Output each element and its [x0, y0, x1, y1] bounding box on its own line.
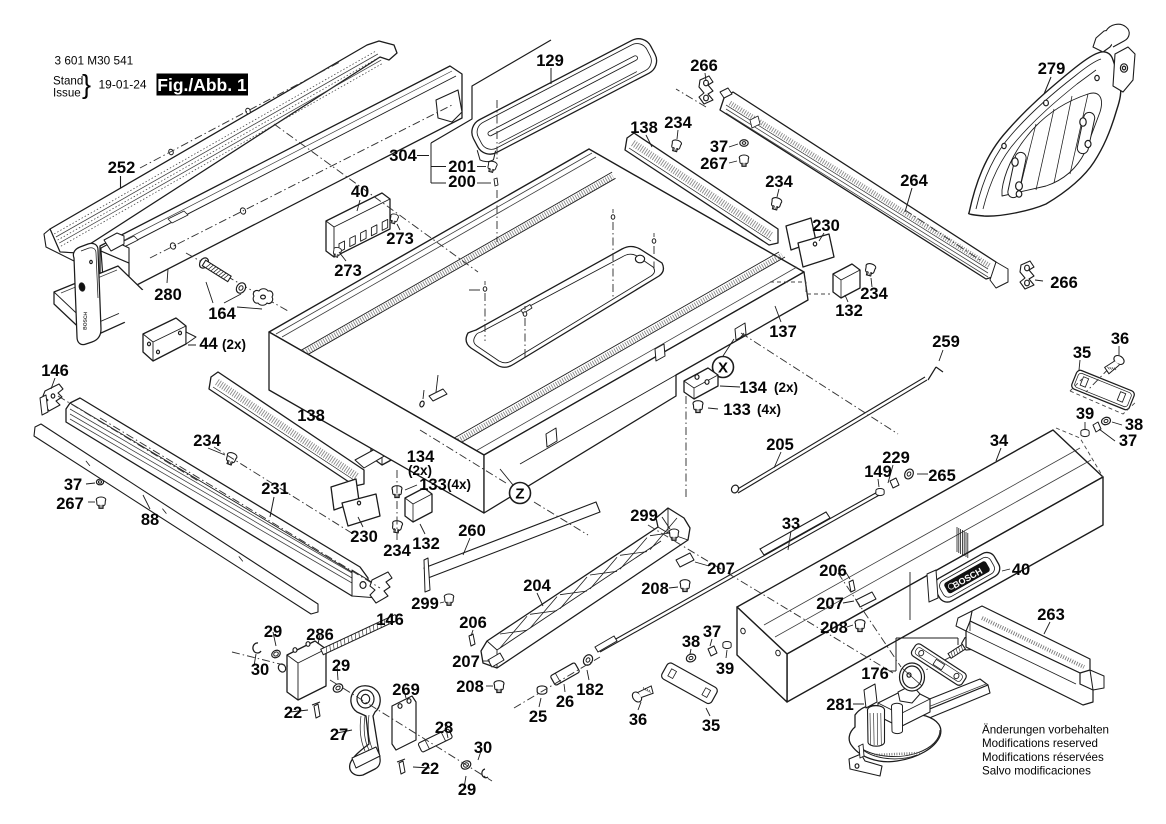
svg-text:281: 281 — [826, 696, 854, 714]
svg-text:Fig./Abb. 1: Fig./Abb. 1 — [157, 75, 247, 95]
svg-text:38: 38 — [682, 633, 700, 651]
svg-text:259: 259 — [932, 333, 960, 351]
svg-text:260: 260 — [458, 522, 486, 540]
svg-text:138: 138 — [297, 407, 325, 425]
svg-text:Änderungen vorbehalten: Änderungen vorbehalten — [982, 724, 1109, 737]
svg-text:Salvo modificaciones: Salvo modificaciones — [982, 765, 1091, 778]
svg-text:205: 205 — [766, 436, 794, 454]
svg-text:208: 208 — [820, 619, 848, 637]
svg-text:34: 34 — [990, 432, 1009, 450]
svg-text:29: 29 — [458, 781, 476, 799]
svg-text:36: 36 — [629, 711, 647, 729]
svg-text:39: 39 — [1076, 405, 1094, 423]
svg-text:230: 230 — [350, 528, 378, 546]
svg-text:Z: Z — [515, 486, 524, 503]
svg-text:206: 206 — [819, 562, 847, 580]
svg-text:3 601 M30 541: 3 601 M30 541 — [55, 54, 134, 68]
svg-text:22: 22 — [284, 704, 302, 722]
svg-text:146: 146 — [41, 362, 69, 380]
svg-text:138: 138 — [630, 119, 658, 137]
svg-text:299: 299 — [630, 507, 658, 525]
svg-text:264: 264 — [900, 172, 928, 190]
svg-text:129: 129 — [536, 52, 564, 70]
svg-text:30: 30 — [474, 739, 492, 757]
svg-text:40: 40 — [1012, 561, 1030, 579]
svg-text:279: 279 — [1038, 60, 1066, 78]
svg-text:19-01-24: 19-01-24 — [99, 78, 147, 92]
svg-text:286: 286 — [306, 626, 334, 644]
svg-text:265: 265 — [928, 467, 956, 485]
svg-text:280: 280 — [154, 286, 182, 304]
svg-text:176: 176 — [861, 665, 889, 683]
svg-text:267: 267 — [700, 155, 728, 173]
svg-text:234: 234 — [860, 285, 888, 303]
svg-text:133: 133 — [419, 476, 447, 494]
svg-text:25: 25 — [529, 708, 547, 726]
svg-text:200: 200 — [448, 173, 476, 191]
svg-text:207: 207 — [707, 560, 735, 578]
svg-text:266: 266 — [1050, 274, 1078, 292]
svg-text:231: 231 — [261, 480, 289, 498]
svg-text:Issue: Issue — [53, 87, 81, 100]
svg-text:137: 137 — [769, 323, 797, 341]
svg-text:207: 207 — [816, 595, 844, 613]
svg-text:273: 273 — [334, 262, 362, 280]
svg-text:}: } — [82, 70, 91, 100]
svg-text:44: 44 — [199, 335, 218, 353]
svg-text:269: 269 — [392, 681, 420, 699]
svg-text:37: 37 — [710, 138, 728, 156]
svg-text:35: 35 — [1073, 344, 1091, 362]
svg-text:37: 37 — [703, 623, 721, 641]
svg-text:88: 88 — [141, 511, 159, 529]
svg-text:234: 234 — [765, 173, 793, 191]
svg-text:29: 29 — [264, 623, 282, 641]
svg-text:149: 149 — [864, 463, 892, 481]
svg-text:39: 39 — [716, 660, 734, 678]
svg-text:182: 182 — [576, 681, 604, 699]
svg-text:37: 37 — [64, 476, 82, 494]
svg-text:36: 36 — [1111, 330, 1129, 348]
svg-text:(4x): (4x) — [757, 402, 781, 417]
svg-text:273: 273 — [386, 230, 414, 248]
svg-text:Modifications reserved: Modifications reserved — [982, 737, 1098, 750]
svg-text:(2x): (2x) — [222, 337, 246, 352]
svg-text:266: 266 — [690, 57, 718, 75]
svg-text:234: 234 — [664, 114, 692, 132]
svg-text:146: 146 — [376, 611, 404, 629]
svg-text:304: 304 — [389, 147, 417, 165]
svg-text:26: 26 — [556, 693, 574, 711]
svg-text:234: 234 — [193, 432, 221, 450]
svg-text:208: 208 — [641, 580, 669, 598]
svg-text:132: 132 — [412, 535, 440, 553]
svg-text:Modifications réservées: Modifications réservées — [982, 751, 1104, 764]
svg-text:132: 132 — [835, 302, 863, 320]
svg-text:234: 234 — [383, 542, 411, 560]
svg-text:208: 208 — [456, 678, 484, 696]
svg-text:35: 35 — [702, 717, 720, 735]
svg-text:252: 252 — [108, 159, 136, 177]
svg-text:33: 33 — [782, 515, 800, 533]
svg-text:28: 28 — [435, 719, 453, 737]
svg-text:(4x): (4x) — [447, 477, 471, 492]
svg-text:204: 204 — [523, 577, 551, 595]
svg-text:29: 29 — [332, 657, 350, 675]
svg-text:164: 164 — [208, 305, 236, 323]
svg-text:22: 22 — [421, 760, 439, 778]
svg-text:(2x): (2x) — [774, 380, 798, 395]
svg-text:267: 267 — [56, 495, 84, 513]
svg-text:134: 134 — [739, 379, 767, 397]
svg-text:27: 27 — [330, 726, 348, 744]
svg-text:230: 230 — [812, 217, 840, 235]
svg-text:299: 299 — [411, 595, 439, 613]
svg-text:133: 133 — [723, 401, 751, 419]
svg-text:263: 263 — [1037, 606, 1065, 624]
svg-text:X: X — [718, 360, 728, 377]
svg-text:207: 207 — [452, 653, 480, 671]
svg-text:30: 30 — [251, 661, 269, 679]
svg-text:37: 37 — [1119, 432, 1137, 450]
svg-text:40: 40 — [351, 183, 369, 201]
svg-text:BOSCH: BOSCH — [83, 311, 90, 330]
svg-text:206: 206 — [459, 614, 487, 632]
